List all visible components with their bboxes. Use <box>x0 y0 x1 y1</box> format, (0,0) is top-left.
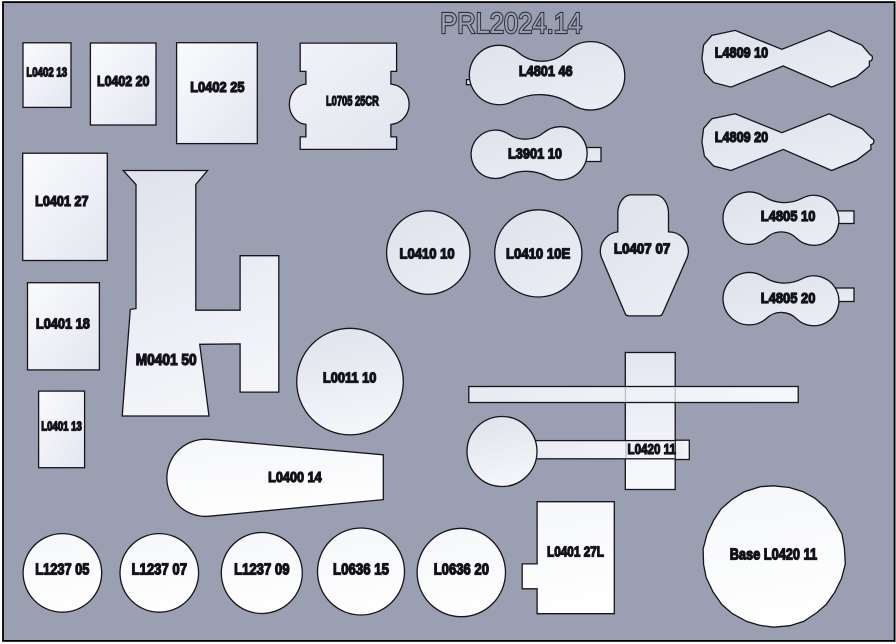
svg-text:L0636 15: L0636 15 <box>333 562 389 579</box>
svg-text:L0410 10: L0410 10 <box>400 246 455 263</box>
svg-text:L0705 25CR: L0705 25CR <box>326 93 379 109</box>
svg-text:L0011 10: L0011 10 <box>323 370 377 387</box>
svg-text:L0401 27L: L0401 27L <box>547 544 604 561</box>
svg-text:M0401 50: M0401 50 <box>136 352 197 369</box>
svg-text:L1237 09: L1237 09 <box>234 562 289 579</box>
svg-text:Base L0420 11: Base L0420 11 <box>730 547 818 564</box>
svg-text:L0402 20: L0402 20 <box>97 73 149 90</box>
svg-text:L0402 13: L0402 13 <box>26 65 67 80</box>
svg-text:L0410 10E: L0410 10E <box>506 246 570 263</box>
svg-text:L0401 18: L0401 18 <box>36 316 90 333</box>
svg-text:L0636 20: L0636 20 <box>434 562 489 579</box>
svg-text:L1237 07: L1237 07 <box>132 562 187 579</box>
svg-text:L3901 10: L3901 10 <box>508 146 562 163</box>
svg-text:L0400 14: L0400 14 <box>268 469 322 486</box>
svg-text:L4809 20: L4809 20 <box>715 129 768 146</box>
svg-text:L4809 10: L4809 10 <box>715 44 768 61</box>
svg-text:L0407 07: L0407 07 <box>614 240 670 257</box>
svg-text:L4805 10: L4805 10 <box>761 208 816 225</box>
svg-text:L4801 46: L4801 46 <box>519 63 573 80</box>
svg-text:PRL2024.14: PRL2024.14 <box>440 8 582 40</box>
svg-text:L0420 11: L0420 11 <box>628 441 676 458</box>
svg-text:L4805 20: L4805 20 <box>761 290 816 307</box>
svg-text:L0401 27: L0401 27 <box>35 193 88 210</box>
svg-text:L0401 13: L0401 13 <box>41 420 82 434</box>
svg-text:L1237 05: L1237 05 <box>35 562 89 579</box>
svg-text:L0402 25: L0402 25 <box>190 79 244 96</box>
